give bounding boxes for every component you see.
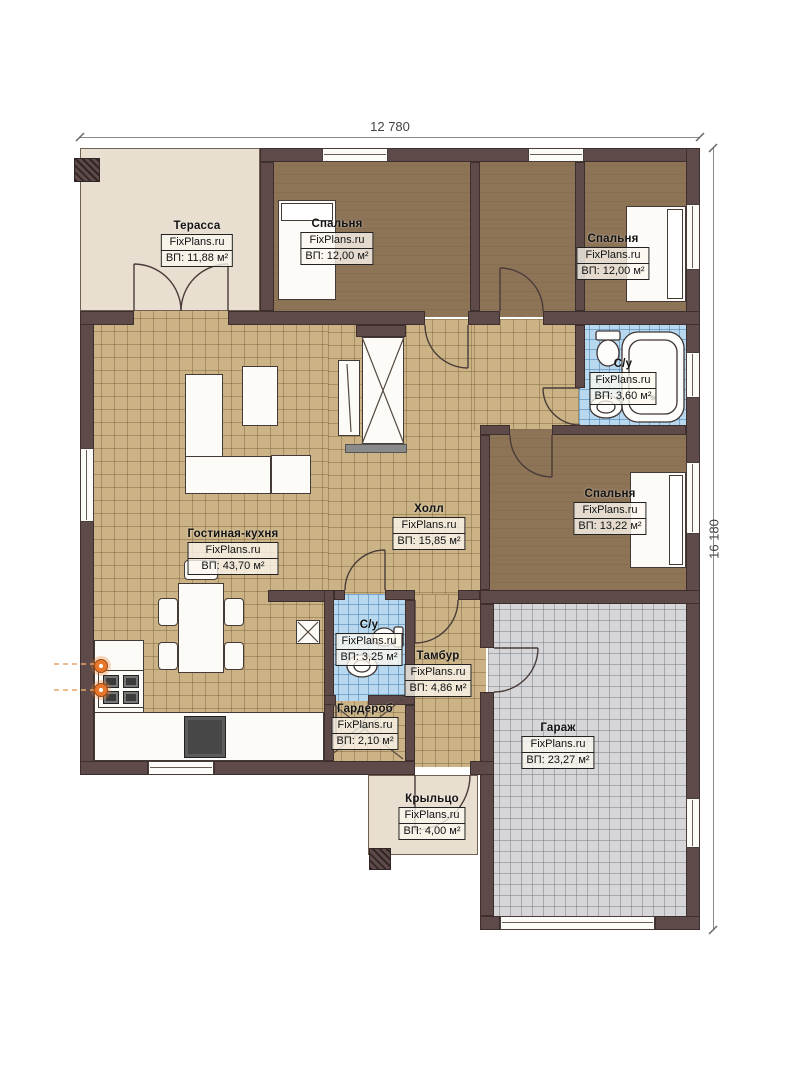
chair-icon — [158, 642, 178, 670]
wall-segment — [480, 604, 494, 648]
wall-segment — [470, 162, 480, 311]
room-name: С/у — [335, 619, 402, 631]
room-area: ВП: 2,10 м² — [331, 733, 398, 750]
window — [80, 448, 94, 522]
pillow — [669, 475, 683, 565]
hall-shelf — [345, 444, 407, 453]
wall-segment — [228, 311, 425, 325]
brand-label: FixPlans.ru — [589, 372, 656, 389]
hall-floor-east — [474, 319, 581, 431]
chair-icon — [158, 598, 178, 626]
wall-segment — [80, 311, 134, 325]
room-label-living-kitchen: Гостиная-кухня FixPlans.ru ВП: 43,70 м² — [188, 528, 279, 575]
wall-segment — [334, 590, 345, 600]
brand-label: FixPlans.ru — [521, 736, 594, 753]
wall-segment — [575, 325, 585, 388]
room-label-terrace: Терасса FixPlans.ru ВП: 11,88 м² — [161, 220, 233, 267]
side-table-icon — [271, 455, 311, 494]
wall-segment — [80, 311, 94, 775]
room-area: ВП: 23,27 м² — [521, 752, 594, 769]
dimension-line-top — [80, 137, 700, 138]
room-area: ВП: 12,00 м² — [300, 248, 373, 265]
window — [686, 352, 700, 398]
brand-label: FixPlans.ru — [161, 234, 233, 251]
room-area: ВП: 3,60 м² — [589, 388, 656, 405]
room-area: ВП: 4,00 м² — [398, 823, 465, 840]
brand-label: FixPlans.ru — [573, 502, 646, 519]
wall-segment — [470, 761, 494, 775]
room-name: Спальня — [300, 218, 373, 230]
utility-box-icon — [296, 620, 320, 644]
sofa-chaise-icon — [185, 456, 271, 494]
wall-segment — [80, 761, 148, 775]
wall-segment — [480, 425, 510, 435]
wall-segment — [214, 761, 415, 775]
window — [528, 148, 584, 162]
window — [686, 798, 700, 848]
room-name: Гостиная-кухня — [188, 528, 279, 540]
wall-segment — [480, 692, 494, 916]
room-label-porch: Крыльцо FixPlans.ru ВП: 4,00 м² — [398, 793, 465, 840]
room-label-wardrobe: Гардероб FixPlans.ru ВП: 2,10 м² — [331, 703, 398, 750]
room-area: ВП: 4,86 м² — [404, 680, 471, 697]
room-name: Спальня — [573, 488, 646, 500]
pillow — [667, 209, 683, 299]
window — [148, 761, 214, 775]
room-area: ВП: 11,88 м² — [161, 250, 233, 267]
room-area: ВП: 13,22 м² — [573, 518, 646, 535]
wall-segment — [458, 590, 480, 600]
column — [369, 848, 391, 870]
room-label-vestibule: Тамбур FixPlans.ru ВП: 4,86 м² — [404, 650, 471, 697]
room-name: Крыльцо — [398, 793, 465, 805]
dining-table-icon — [178, 583, 224, 673]
wall-segment — [655, 916, 700, 930]
brand-label: FixPlans.ru — [576, 247, 649, 264]
room-name: С/у — [589, 358, 656, 370]
window — [322, 148, 388, 162]
room-name: Терасса — [161, 220, 233, 232]
dimension-height-label: 16 180 — [707, 519, 722, 559]
wall-segment — [405, 705, 415, 761]
brand-label: FixPlans.ru — [404, 664, 471, 681]
dimension-width-label: 12 780 — [370, 119, 410, 134]
brand-label: FixPlans.ru — [398, 807, 465, 824]
room-area: ВП: 12,00 м² — [576, 263, 649, 280]
wall-segment — [543, 311, 700, 325]
room-name: Гараж — [521, 722, 594, 734]
room-name: Спальня — [576, 233, 649, 245]
wall-segment — [468, 311, 500, 325]
room-area: ВП: 15,85 м² — [392, 533, 465, 550]
room-name: Тамбур — [404, 650, 471, 662]
hall-wardrobe-icon — [362, 337, 404, 444]
brand-label: FixPlans.ru — [335, 633, 402, 650]
room-label-bedroom-3: Спальня FixPlans.ru ВП: 13,22 м² — [573, 488, 646, 535]
brand-label: FixPlans.ru — [331, 717, 398, 734]
room-label-hall: Холл FixPlans.ru ВП: 15,85 м² — [392, 503, 465, 550]
room-label-bedroom-1: Спальня FixPlans.ru ВП: 12,00 м² — [300, 218, 373, 265]
brand-label: FixPlans.ru — [300, 232, 373, 249]
wall-segment — [356, 325, 406, 337]
anteroom-floor — [474, 156, 581, 317]
room-name: Холл — [392, 503, 465, 515]
room-label-garage: Гараж FixPlans.ru ВП: 23,27 м² — [521, 722, 594, 769]
wall-segment — [480, 916, 500, 930]
room-name: Гардероб — [331, 703, 398, 715]
wall-segment — [480, 435, 490, 590]
garage-door — [500, 916, 655, 930]
wall-segment — [480, 590, 700, 604]
room-label-small-bathroom: С/у FixPlans.ru ВП: 3,25 м² — [335, 619, 402, 666]
window — [686, 204, 700, 270]
wall-segment — [552, 425, 686, 435]
wall-segment — [260, 162, 274, 311]
hall-cabinet-icon — [338, 360, 360, 436]
stove-icon — [98, 670, 144, 708]
room-area: ВП: 3,25 м² — [335, 649, 402, 666]
room-area: ВП: 43,70 м² — [188, 558, 279, 575]
brand-label: FixPlans.ru — [392, 517, 465, 534]
chair-icon — [224, 598, 244, 626]
coffee-table-icon — [242, 366, 278, 426]
brand-label: FixPlans.ru — [188, 542, 279, 559]
chair-icon — [224, 642, 244, 670]
floor-plan-canvas: 12 780 16 180 — [0, 0, 792, 1080]
column — [74, 158, 100, 182]
room-label-bathroom: С/у FixPlans.ru ВП: 3,60 м² — [589, 358, 656, 405]
room-label-bedroom-2: Спальня FixPlans.ru ВП: 12,00 м² — [576, 233, 649, 280]
wall-segment — [385, 590, 415, 600]
oven-icon — [184, 716, 226, 758]
window — [686, 462, 700, 534]
